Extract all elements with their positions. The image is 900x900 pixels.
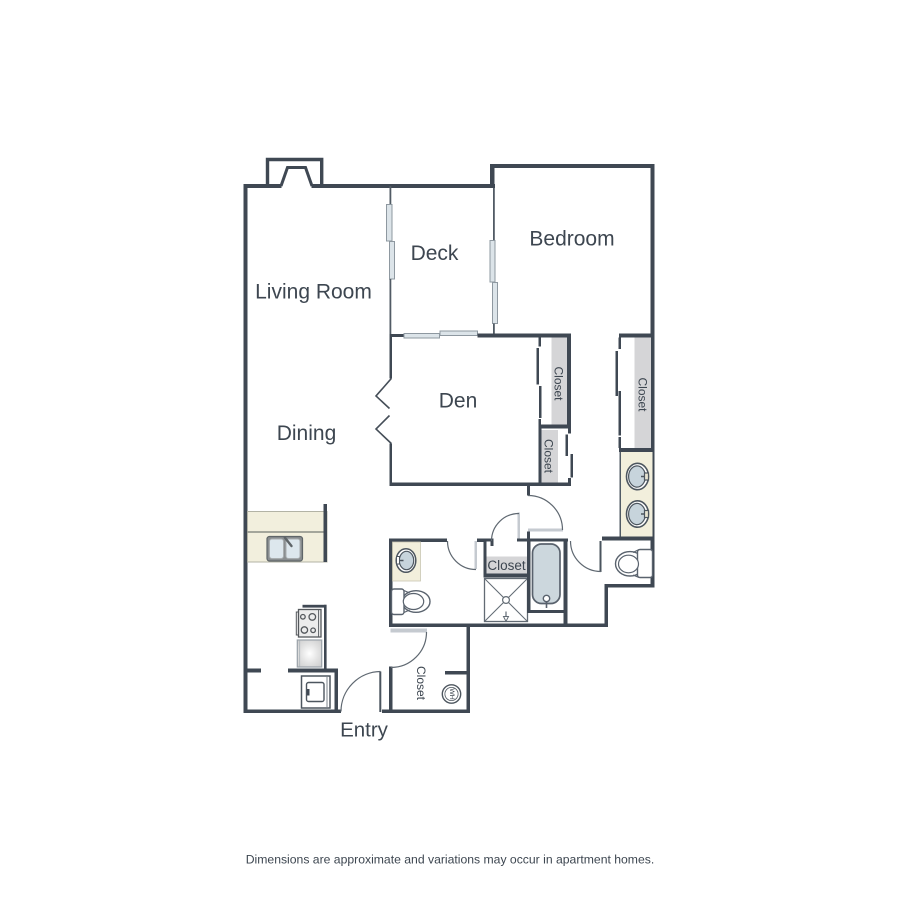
svg-text:Closet: Closet — [552, 366, 566, 401]
svg-text:Closet: Closet — [542, 439, 556, 474]
svg-text:Closet: Closet — [487, 558, 526, 573]
svg-text:Bedroom: Bedroom — [529, 228, 614, 251]
svg-text:WH: WH — [448, 688, 455, 699]
svg-text:Closet: Closet — [636, 377, 650, 412]
svg-text:Dining: Dining — [277, 422, 337, 445]
svg-text:Living Room: Living Room — [255, 281, 372, 304]
svg-text:Dimensions are approximate and: Dimensions are approximate and variation… — [246, 853, 654, 867]
svg-text:Den: Den — [439, 390, 478, 413]
svg-text:Deck: Deck — [411, 242, 459, 265]
svg-text:Entry: Entry — [340, 719, 389, 742]
svg-text:Closet: Closet — [414, 666, 428, 701]
